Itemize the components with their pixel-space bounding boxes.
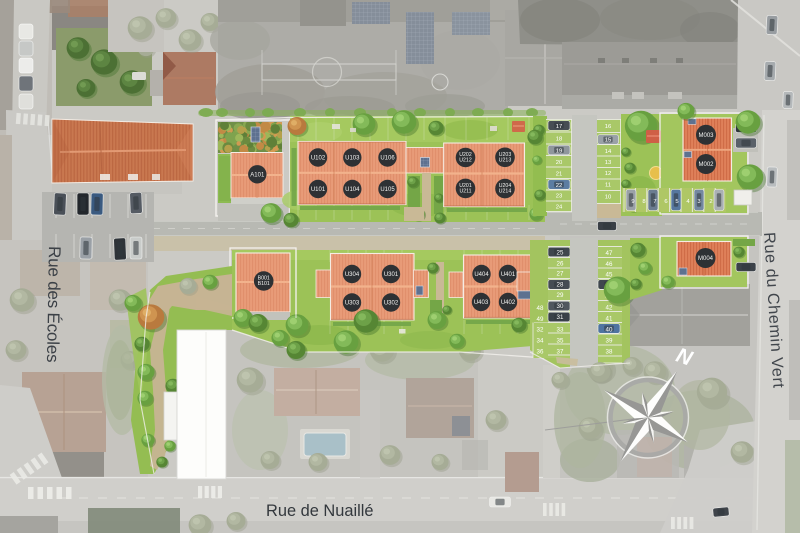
svg-text:11: 11 — [605, 183, 611, 189]
svg-text:37: 37 — [557, 349, 564, 356]
svg-text:U303: U303 — [345, 301, 360, 307]
svg-text:U103: U103 — [345, 156, 360, 162]
svg-text:M002: M002 — [698, 162, 714, 168]
svg-text:U401: U401 — [501, 272, 516, 278]
svg-text:U102: U102 — [311, 156, 326, 162]
svg-text:40: 40 — [606, 327, 613, 334]
svg-text:46: 46 — [606, 261, 613, 268]
svg-text:U404: U404 — [474, 272, 489, 278]
svg-text:18: 18 — [556, 137, 563, 143]
svg-text:31: 31 — [557, 314, 564, 321]
svg-text:9: 9 — [631, 199, 634, 205]
svg-text:12: 12 — [605, 171, 612, 177]
svg-text:U105: U105 — [380, 187, 395, 193]
svg-text:35: 35 — [557, 338, 564, 345]
svg-text:21: 21 — [556, 172, 563, 178]
svg-text:19: 19 — [556, 149, 563, 155]
svg-text:45: 45 — [606, 272, 613, 279]
svg-text:24: 24 — [556, 205, 563, 211]
svg-text:U403: U403 — [474, 300, 489, 306]
svg-text:U104: U104 — [345, 187, 360, 193]
svg-text:41: 41 — [606, 316, 613, 323]
svg-text:M003: M003 — [698, 133, 714, 139]
svg-text:30: 30 — [557, 303, 564, 310]
svg-text:13: 13 — [605, 160, 612, 166]
svg-text:16: 16 — [605, 124, 612, 130]
svg-text:39: 39 — [606, 338, 613, 345]
svg-text:36: 36 — [537, 349, 544, 356]
svg-text:49: 49 — [537, 316, 544, 323]
svg-text:32: 32 — [537, 327, 544, 334]
svg-text:Rue de Nuaillé: Rue de Nuaillé — [266, 502, 374, 520]
svg-text:38: 38 — [606, 349, 613, 356]
svg-text:M004: M004 — [698, 256, 714, 262]
svg-text:10: 10 — [605, 195, 612, 201]
svg-text:48: 48 — [537, 305, 544, 312]
svg-text:27: 27 — [557, 271, 564, 278]
svg-text:28: 28 — [557, 282, 564, 289]
svg-text:42: 42 — [606, 305, 613, 312]
svg-text:U302: U302 — [384, 301, 399, 307]
svg-text:U202U212: U202U212 — [459, 152, 472, 164]
svg-text:U301: U301 — [384, 272, 399, 278]
svg-text:U304: U304 — [345, 272, 360, 278]
svg-text:33: 33 — [557, 327, 564, 334]
svg-text:U204U214: U204U214 — [499, 183, 512, 195]
svg-text:A101: A101 — [250, 172, 265, 178]
svg-text:26: 26 — [557, 261, 564, 268]
svg-text:25: 25 — [557, 250, 564, 257]
svg-text:15: 15 — [605, 138, 612, 144]
svg-text:47: 47 — [606, 250, 613, 257]
svg-text:2: 2 — [709, 199, 712, 205]
svg-text:U101: U101 — [311, 187, 326, 193]
svg-text:U201U211: U201U211 — [459, 183, 472, 195]
svg-text:U402: U402 — [501, 300, 516, 306]
svg-text:U203U213: U203U213 — [499, 152, 512, 164]
svg-text:Rue des Écoles: Rue des Écoles — [43, 246, 64, 363]
svg-text:29: 29 — [557, 292, 564, 299]
svg-text:23: 23 — [556, 194, 563, 200]
svg-text:7: 7 — [653, 199, 656, 205]
svg-text:22: 22 — [556, 183, 563, 189]
svg-text:17: 17 — [556, 124, 563, 130]
svg-text:34: 34 — [537, 338, 544, 345]
svg-text:20: 20 — [556, 160, 563, 166]
svg-text:B001B101: B001B101 — [258, 276, 270, 288]
svg-text:U106: U106 — [380, 156, 395, 162]
svg-text:14: 14 — [605, 149, 612, 155]
